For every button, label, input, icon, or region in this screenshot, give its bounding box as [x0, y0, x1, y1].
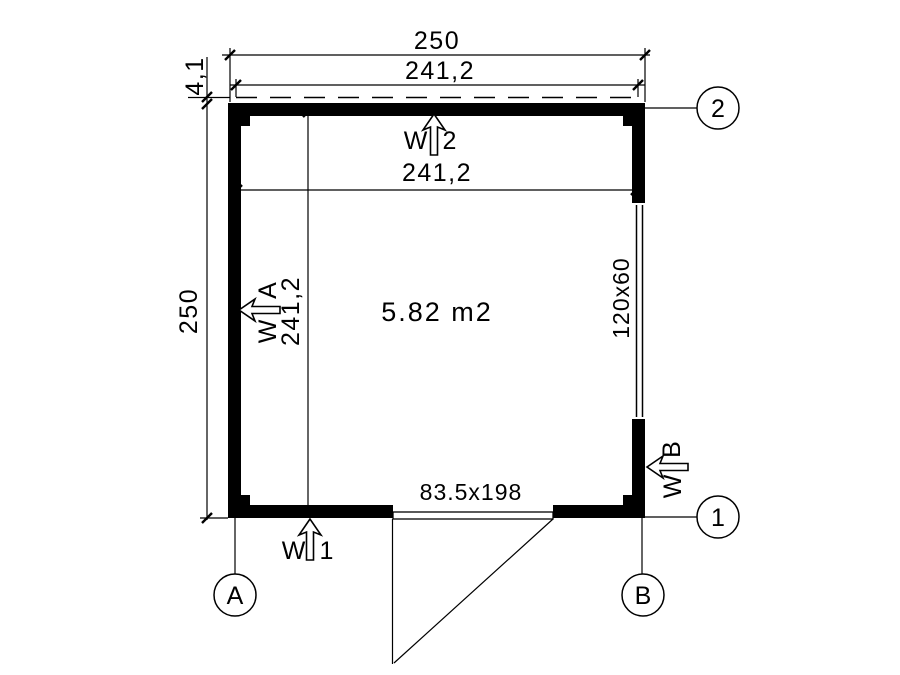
w1-mark-prefix: W	[282, 537, 307, 565]
window-symbol	[637, 205, 643, 417]
wa-left-arrow-icon	[239, 299, 280, 321]
grid-bubble-b-label: B	[635, 582, 652, 610]
interior-height-inner-label: 241,2	[277, 276, 305, 346]
roof-overhang-label: 4,1	[181, 56, 209, 95]
wb-mark-number: B	[658, 440, 686, 458]
overall-width-label: 250	[414, 27, 460, 55]
door-symbol	[393, 512, 554, 664]
wall-top	[228, 103, 645, 116]
corner-joint-bottom-right	[623, 495, 632, 505]
w1-mark-number: 1	[320, 537, 335, 565]
wall-right-lower-segment	[632, 419, 645, 518]
w2-mark-number: 2	[443, 127, 458, 155]
interior-width-top-label: 241,2	[405, 57, 475, 85]
door-swing-diagonal-line	[394, 519, 553, 663]
floor-plan-page: 2 1 A B W 2 W 1 A W B W 250 241	[0, 0, 900, 675]
grid-bubble-a-label: A	[227, 582, 244, 610]
room-area-label: 5.82 m2	[381, 297, 493, 327]
dimension-labels: 250 241,2 4,1 250 241,2 241,2 120x60 83.…	[175, 27, 634, 505]
wall-bottom-right-segment	[553, 505, 645, 518]
overall-height-label: 250	[175, 288, 203, 334]
door-leaf	[393, 512, 553, 519]
wb-mark-prefix: W	[659, 474, 687, 499]
w2-mark-prefix: W	[404, 127, 429, 155]
door-size-label: 83.5x198	[420, 479, 523, 505]
corner-joint-top-left	[241, 116, 250, 126]
interior-width-inner-label: 241,2	[402, 159, 472, 187]
window-size-label: 120x60	[608, 257, 634, 338]
corner-joint-bottom-left	[241, 495, 250, 505]
grid-bubble-2-label: 2	[711, 95, 725, 123]
grid-bubble-1-label: 1	[711, 504, 725, 532]
floor-plan-canvas: 2 1 A B W 2 W 1 A W B W 250 241	[0, 0, 900, 675]
corner-joint-top-right	[623, 116, 632, 126]
